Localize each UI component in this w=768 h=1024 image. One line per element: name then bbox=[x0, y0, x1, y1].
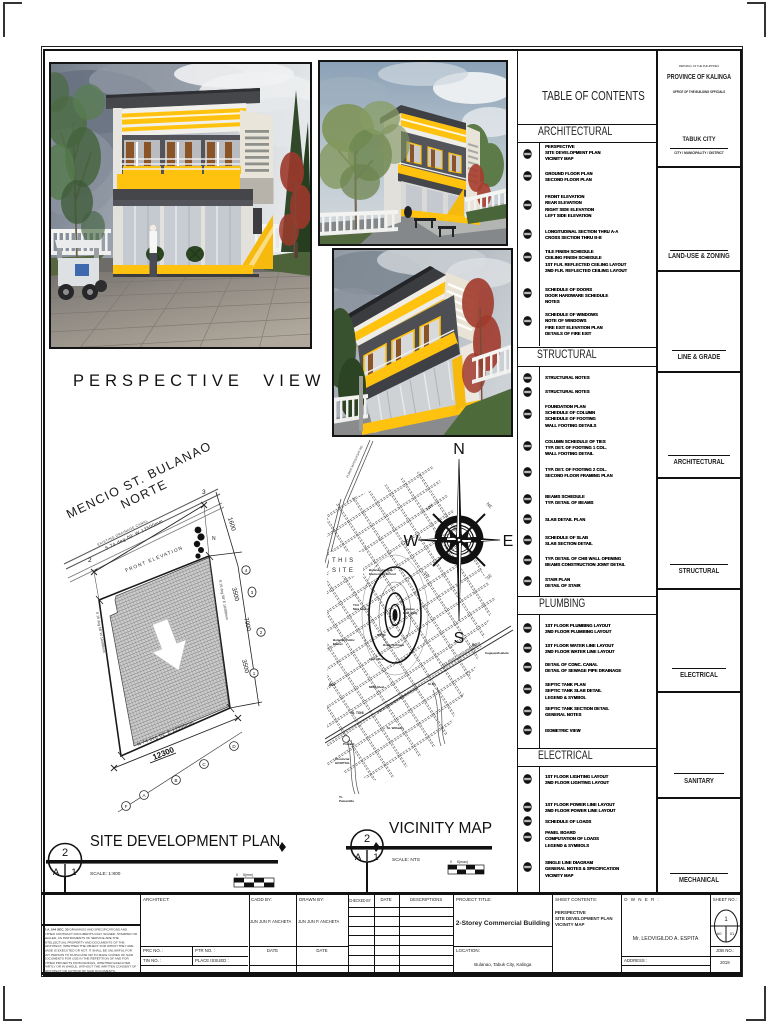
svg-text:MENCIO ST. BULANAO: MENCIO ST. BULANAO bbox=[64, 439, 214, 522]
svg-text:2: 2 bbox=[88, 557, 92, 564]
svg-text:01: 01 bbox=[730, 931, 735, 936]
svg-text:12300: 12300 bbox=[151, 745, 176, 762]
svg-text:SITE: SITE bbox=[332, 568, 355, 574]
svg-text:3500: 3500 bbox=[240, 659, 250, 675]
svg-text:SITE DEVELOPMENT PLAN: SITE DEVELOPMENT PLAN bbox=[90, 833, 280, 850]
svg-text:A: A bbox=[53, 867, 60, 878]
svg-text:St. Williams: St. Williams bbox=[387, 726, 404, 730]
svg-text:MDM Steel: MDM Steel bbox=[369, 685, 384, 689]
svg-text:S: S bbox=[454, 630, 465, 647]
svg-text:SW: SW bbox=[422, 570, 431, 579]
svg-text:SCALE: 1:800: SCALE: 1:800 bbox=[90, 871, 121, 877]
svg-text:Pamamilla: Pamamilla bbox=[339, 799, 354, 803]
svg-text:N: N bbox=[453, 441, 465, 458]
svg-text:1600: 1600 bbox=[226, 517, 237, 533]
svg-text:SE: SE bbox=[485, 573, 493, 581]
svg-text:SCALE: NTS: SCALE: NTS bbox=[392, 857, 420, 863]
svg-text:NSTM: NSTM bbox=[377, 633, 386, 637]
svg-text:2: 2 bbox=[62, 847, 68, 859]
svg-text:St. TONI: St. TONI bbox=[351, 711, 364, 715]
svg-text:N 15 deg 58' E 10400mm: N 15 deg 58' E 10400mm bbox=[218, 579, 229, 620]
svg-text:HOSPITAL: HOSPITAL bbox=[335, 761, 350, 765]
svg-text:E: E bbox=[503, 533, 514, 550]
svg-text:NE: NE bbox=[485, 501, 493, 509]
svg-text:F: F bbox=[125, 804, 128, 809]
svg-text:3500: 3500 bbox=[230, 587, 240, 603]
svg-text:Mini Forest: Mini Forest bbox=[353, 607, 369, 611]
svg-text:A: A bbox=[142, 793, 145, 798]
svg-text:1: 1 bbox=[71, 867, 76, 878]
svg-text:A: A bbox=[355, 852, 362, 863]
svg-text:1: 1 bbox=[724, 917, 728, 923]
svg-text:N: N bbox=[212, 536, 216, 542]
svg-text:Law office: Law office bbox=[369, 657, 384, 661]
svg-text:Cagayan/Isabela: Cagayan/Isabela bbox=[485, 651, 509, 655]
svg-text:Pob. Mktg: Pob. Mktg bbox=[403, 611, 417, 615]
svg-text:Pinawid: Pinawid bbox=[343, 742, 355, 746]
svg-text:0 5(mm): 0 5(mm) bbox=[236, 873, 253, 877]
svg-text:7000: 7000 bbox=[242, 617, 252, 633]
svg-text:VICINITY MAP: VICINITY MAP bbox=[389, 820, 492, 837]
svg-text:Elementary School: Elementary School bbox=[369, 572, 396, 576]
svg-text:2: 2 bbox=[364, 833, 370, 845]
svg-text:THIS: THIS bbox=[332, 558, 356, 564]
svg-text:3: 3 bbox=[202, 489, 206, 496]
svg-text:RC: RC bbox=[472, 643, 477, 647]
svg-text:A0: A0 bbox=[716, 931, 722, 936]
svg-text:0 6(max): 0 6(max) bbox=[450, 860, 468, 864]
svg-text:Road Frontage: Road Frontage bbox=[383, 643, 404, 647]
svg-text:NW: NW bbox=[425, 502, 434, 511]
svg-text:1: 1 bbox=[373, 852, 378, 863]
svg-text:W: W bbox=[403, 533, 419, 550]
svg-text:Market: Market bbox=[333, 642, 343, 646]
svg-text:B: B bbox=[174, 778, 177, 783]
svg-text:BDY: BDY bbox=[329, 683, 337, 687]
svg-text:St.B1: St.B1 bbox=[428, 682, 436, 686]
